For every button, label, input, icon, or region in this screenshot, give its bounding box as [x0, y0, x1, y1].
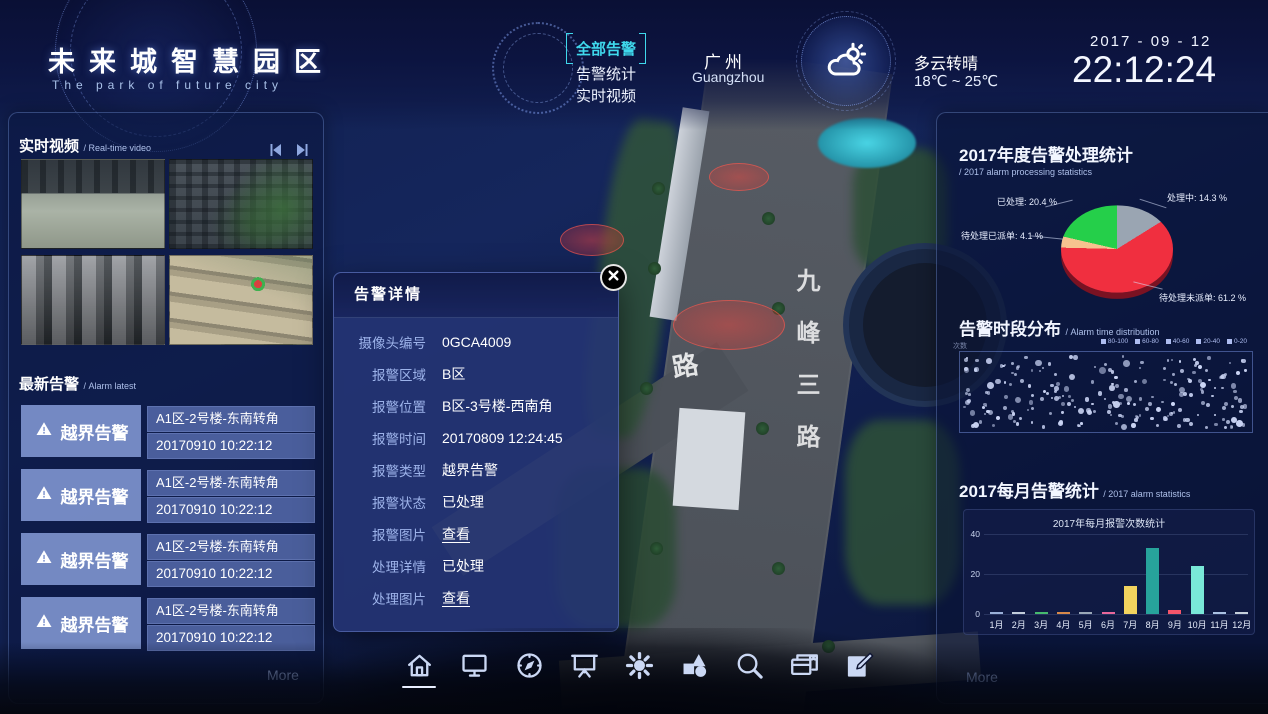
scatter-point: [968, 393, 971, 396]
scatter-point: [1071, 399, 1074, 402]
scatter-point: [1123, 360, 1130, 367]
weather-condition: 多云转晴: [914, 50, 978, 74]
scatter-point: [1233, 390, 1237, 394]
scatter-point: [1091, 403, 1093, 405]
scatter-point: [1111, 370, 1115, 374]
video-prev-button[interactable]: [265, 141, 287, 161]
alarm-timestamp: 20170910 10:22:12: [147, 497, 315, 523]
view-link[interactable]: 查看: [442, 524, 470, 544]
scatter-point: [1104, 363, 1108, 367]
scatter-legend: 80-10060-8040-6020-400-20: [937, 338, 1247, 345]
map-building: [673, 408, 746, 510]
popup-field-row: 报警位置B区-3号楼-西南角: [334, 395, 618, 417]
alarm-type-label: 越界告警: [61, 419, 129, 444]
right-panel: 2017年度告警处理统计 / 2017 alarm processing sta…: [936, 112, 1268, 704]
bar-month-label: 6月: [1097, 618, 1119, 631]
field-label: 报警时间: [334, 428, 426, 448]
view-link[interactable]: 查看: [442, 588, 470, 608]
popup-field-row: 报警图片查看: [334, 523, 618, 545]
scatter-point: [1148, 402, 1152, 406]
bar-month-label: 9月: [1164, 618, 1186, 631]
scatter-point: [1124, 388, 1128, 392]
scatter-point: [1179, 360, 1182, 363]
legend-label: 0-20: [1234, 338, 1247, 345]
scatter-point: [1054, 373, 1057, 376]
bar-section-header: 2017每月告警统计 / 2017 alarm statistics: [959, 477, 1190, 502]
scatter-point: [1073, 355, 1078, 360]
pie-callout-label: 处理中: 14.3 %: [1167, 191, 1227, 204]
scatter-point: [985, 405, 987, 407]
field-label: 报警状态: [334, 492, 426, 512]
warning-triangle-icon: [34, 420, 54, 443]
scatter-point: [1231, 383, 1237, 389]
scatter-point: [1013, 420, 1016, 423]
alarm-location: A1区-2号楼-东南转角: [147, 598, 315, 624]
scatter-point: [1035, 360, 1041, 366]
scatter-point: [1195, 361, 1199, 365]
cards-icon: [789, 650, 820, 686]
scatter-point: [1027, 409, 1029, 411]
scatter-point: [1177, 424, 1181, 428]
alarm-list-item[interactable]: 越界告警A1区-2号楼-东南转角20170910 10:22:12: [21, 405, 313, 457]
scatter-point: [1069, 374, 1075, 380]
alarm-zone-ellipse[interactable]: [673, 300, 785, 350]
map-tree: [652, 182, 665, 195]
alarm-zone-ellipse[interactable]: [709, 163, 769, 191]
scatter-point: [1156, 424, 1159, 427]
alarm-location: A1区-2号楼-东南转角: [147, 534, 315, 560]
scatter-point: [1115, 384, 1119, 388]
toolbar-projection-screen[interactable]: [567, 650, 601, 690]
scatter-point: [1015, 397, 1021, 403]
field-label: 报警图片: [334, 524, 426, 544]
scatter-point: [1127, 402, 1130, 405]
scatter-point: [963, 406, 966, 409]
scatter-point: [971, 424, 975, 428]
scatter-point: [996, 416, 1001, 421]
scatter-point: [1039, 370, 1041, 372]
toolbar-monitor[interactable]: [457, 650, 491, 690]
map-tree: [650, 542, 663, 555]
scatter-point: [1139, 367, 1141, 369]
video-section-subtitle: / Real-time video: [83, 143, 151, 153]
scatter-point: [1042, 367, 1044, 369]
scatter-point: [1167, 359, 1170, 362]
field-value: 已处理: [442, 492, 484, 512]
bar-section-subtitle: / 2017 alarm statistics: [1103, 489, 1190, 499]
video-section-header: 实时视频 / Real-time video: [19, 135, 151, 156]
pie-callout-label: 已处理: 20.4 %: [997, 195, 1057, 208]
scatter-point: [1206, 403, 1210, 407]
scatter-point: [1064, 386, 1069, 391]
legend-label: 40-60: [1173, 338, 1190, 345]
warning-triangle-icon: [34, 548, 54, 571]
header-clock: 22:12:24: [1072, 49, 1216, 91]
alarm-list-item[interactable]: 越界告警A1区-2号楼-东南转角20170910 10:22:12: [21, 469, 313, 521]
popup-field-row: 摄像头编号0GCA4009: [334, 331, 618, 353]
scatter-point: [1004, 364, 1006, 366]
field-value: B区-3号楼-西南角: [442, 396, 552, 416]
scatter-point: [1098, 391, 1102, 395]
field-label: 报警区域: [334, 364, 426, 384]
legend-label: 80-100: [1108, 338, 1128, 345]
weather-widget: [801, 16, 891, 106]
scatter-point: [995, 379, 1000, 384]
bar-section-title: 2017每月告警统计: [959, 482, 1099, 501]
scatter-point: [1142, 379, 1147, 384]
popup-field-list: 摄像头编号0GCA4009报警区域B区报警位置B区-3号楼-西南角报警时间201…: [334, 331, 618, 619]
scatter-point: [1151, 396, 1154, 399]
map-tree: [756, 422, 769, 435]
scatter-point: [1031, 394, 1034, 397]
field-value: 20170809 12:24:45: [442, 430, 563, 446]
scatter-point: [1229, 362, 1231, 364]
scatter-point: [1085, 397, 1089, 401]
scatter-point: [1133, 403, 1137, 407]
bar-column: [1102, 612, 1115, 614]
scatter-point: [1236, 420, 1243, 427]
scatter-point: [1024, 356, 1028, 360]
scatter-point: [1214, 414, 1216, 416]
scatter-legend-item: 40-60: [1166, 338, 1190, 345]
scatter-point: [1135, 415, 1138, 418]
scatter-point: [1093, 410, 1096, 413]
scatter-point: [1201, 401, 1205, 405]
scatter-point: [1058, 396, 1062, 400]
scatter-point: [1067, 402, 1071, 406]
popup-field-row: 报警区域B区: [334, 363, 618, 385]
left-panel: 实时视频 / Real-time video 最新告警 / Alarm late…: [8, 112, 324, 704]
bar-month-label: 2月: [1008, 618, 1030, 631]
scatter-point: [1241, 359, 1245, 363]
scatter-point: [1020, 379, 1024, 383]
scatter-point: [1131, 423, 1135, 427]
bar-column: [1235, 612, 1248, 614]
alarm-detail-popup: 告警详情 摄像头编号0GCA4009报警区域B区报警位置B区-3号楼-西南角报警…: [333, 272, 619, 632]
warning-triangle-icon: [34, 484, 54, 507]
projection-screen-icon: [569, 650, 600, 686]
legend-swatch: [1135, 339, 1140, 344]
scatter-point: [1107, 410, 1111, 414]
alarm-list-item[interactable]: 越界告警A1区-2号楼-东南转角20170910 10:22:12: [21, 533, 313, 585]
scatter-point: [1139, 414, 1142, 417]
alarm-zone-ellipse[interactable]: [560, 224, 624, 256]
toolbar-gear[interactable]: [622, 650, 656, 690]
scatter-point: [1028, 384, 1032, 388]
popup-field-row: 报警类型越界告警: [334, 459, 618, 481]
alarm-location: A1区-2号楼-东南转角: [147, 406, 315, 432]
bar-month-label: 3月: [1030, 618, 1052, 631]
alarm-section-header: 最新告警 / Alarm latest: [19, 373, 136, 394]
bar-month-label: 4月: [1052, 618, 1074, 631]
field-label: 摄像头编号: [334, 332, 426, 352]
scatter-point: [1119, 402, 1123, 406]
scatter-point: [1054, 386, 1058, 390]
bar-month-label: 8月: [1142, 618, 1164, 631]
bar-column: [990, 612, 1003, 614]
scatter-point: [1239, 410, 1242, 413]
alarm-timestamp: 20170910 10:22:12: [147, 561, 315, 587]
scatter-point: [1003, 406, 1007, 410]
scatter-point: [1031, 421, 1034, 424]
alarm-section-subtitle: / Alarm latest: [83, 381, 136, 391]
alarm-type-label: 越界告警: [61, 547, 129, 572]
popup-header: 告警详情: [334, 273, 618, 318]
city-name-en: Guangzhou: [692, 69, 764, 85]
active-tab-underline: [402, 686, 436, 688]
home-icon: [404, 650, 435, 686]
menu-item-all-alarms[interactable]: 全部告警: [576, 38, 636, 59]
scatter-point: [1180, 369, 1184, 373]
popup-field-row: 处理图片查看: [334, 587, 618, 609]
scatter-point: [1163, 379, 1166, 382]
scatter-point: [1008, 414, 1014, 420]
scatter-point: [1200, 382, 1206, 388]
scatter-point: [1178, 408, 1182, 412]
scatter-point: [1244, 369, 1246, 371]
scatter-point: [979, 420, 982, 423]
scatter-point: [1173, 411, 1175, 413]
bar-ytick-label: 40: [964, 529, 980, 539]
bar-ytick-label: 20: [964, 569, 980, 579]
scatter-point: [1238, 398, 1242, 402]
legend-swatch: [1196, 339, 1201, 344]
warning-triangle-icon: [34, 612, 54, 635]
alarm-time-scatter-chart: [959, 351, 1253, 433]
scatter-point: [1099, 367, 1106, 374]
toolbar-search[interactable]: [732, 650, 766, 690]
scatter-point: [1189, 422, 1193, 426]
field-label: 报警类型: [334, 460, 426, 480]
toolbar-shapes[interactable]: [677, 650, 711, 690]
scatter-point: [1121, 424, 1127, 430]
scatter-point: [1104, 398, 1107, 401]
video-section-title: 实时视频: [19, 138, 79, 155]
scatter-point: [1016, 422, 1020, 426]
map-tree: [648, 262, 661, 275]
map-tree: [640, 382, 653, 395]
video-thumbnail[interactable]: [169, 159, 313, 249]
scatter-point: [1211, 395, 1213, 397]
scatter-point: [970, 410, 975, 415]
scatter-point: [1226, 420, 1230, 424]
scatter-point: [1108, 404, 1112, 408]
scatter-point: [1183, 392, 1187, 396]
field-label: 处理详情: [334, 556, 426, 576]
pie-section-title: 2017年度告警处理统计: [959, 141, 1133, 166]
alarm-type-label: 越界告警: [61, 483, 129, 508]
scatter-point: [1134, 380, 1137, 383]
scatter-point: [1078, 408, 1085, 415]
compass-icon: [514, 650, 545, 686]
toolbar-compass[interactable]: [512, 650, 546, 690]
scatter-point: [1115, 376, 1118, 379]
scatter-point: [1219, 376, 1222, 379]
scatter-point: [1049, 412, 1053, 416]
bar-gridline: [984, 614, 1248, 615]
field-value: B区: [442, 364, 465, 384]
bar-column: [1146, 548, 1159, 614]
field-value: 已处理: [442, 556, 484, 576]
scatter-point: [1234, 396, 1238, 400]
scatter-point: [1004, 395, 1008, 399]
scatter-legend-item: 80-100: [1101, 338, 1128, 345]
scatter-point: [1019, 417, 1022, 420]
bar-chart-inner-title: 2017年每月报警次数统计: [964, 515, 1254, 530]
scatter-point: [1122, 355, 1124, 357]
scatter-point: [1056, 382, 1060, 386]
legend-swatch: [1166, 339, 1171, 344]
scatter-point: [1118, 394, 1124, 400]
bar-column: [1213, 612, 1226, 614]
scatter-point: [1078, 425, 1081, 428]
scatter-point: [1094, 366, 1097, 369]
scatter-point: [1115, 422, 1119, 426]
scatter-point: [1091, 380, 1094, 383]
scatter-section-title: 告警时段分布: [959, 320, 1061, 339]
scatter-point: [1121, 415, 1124, 418]
search-icon: [734, 650, 765, 686]
weather-temperature: 18℃ ~ 25℃: [914, 72, 998, 90]
scatter-point: [1222, 406, 1226, 410]
bar-column: [1124, 586, 1137, 614]
scatter-point: [1134, 418, 1138, 422]
scatter-point: [1164, 417, 1168, 421]
scatter-point: [1014, 373, 1017, 376]
scatter-legend-item: 60-80: [1135, 338, 1159, 345]
scatter-point: [974, 368, 978, 372]
scatter-point: [1161, 401, 1164, 404]
scatter-point: [1207, 356, 1211, 360]
scatter-point: [1009, 383, 1012, 386]
pie-graphic: [1061, 205, 1173, 292]
shapes-icon: [679, 650, 710, 686]
scatter-point: [1222, 418, 1225, 421]
popup-field-row: 处理详情已处理: [334, 555, 618, 577]
scatter-point: [986, 358, 992, 364]
popup-close-button[interactable]: [600, 264, 627, 291]
toolbar-home[interactable]: [402, 650, 436, 690]
cloud-sun-icon: [822, 37, 870, 90]
field-value: 越界告警: [442, 460, 498, 480]
app-title: 未来城智慧园区: [48, 40, 335, 79]
video-next-button[interactable]: [293, 141, 315, 161]
scatter-point: [1171, 402, 1175, 406]
gear-icon: [624, 650, 655, 686]
bar-column: [1079, 612, 1092, 614]
legend-swatch: [1227, 339, 1232, 344]
toolbar-edit[interactable]: [842, 650, 876, 690]
scatter-point: [1011, 362, 1014, 365]
toolbar-cards[interactable]: [787, 650, 821, 690]
scatter-point: [1061, 411, 1063, 413]
scatter-point: [984, 413, 987, 416]
scatter-point: [1197, 414, 1199, 416]
field-label: 报警位置: [334, 396, 426, 416]
legend-swatch: [1101, 339, 1106, 344]
scatter-point: [1221, 387, 1224, 390]
scatter-point: [1048, 362, 1051, 365]
field-label: 处理图片: [334, 588, 426, 608]
scatter-point: [1171, 359, 1174, 362]
bar-column: [1168, 610, 1181, 614]
video-thumbnail[interactable]: [21, 159, 165, 249]
popup-field-row: 报警时间20170809 12:24:45: [334, 427, 618, 449]
menu-item-realtime-video[interactable]: 实时视频: [576, 85, 636, 106]
bottom-toolbar: [402, 650, 876, 690]
field-value: 0GCA4009: [442, 334, 511, 350]
scatter-point: [1074, 406, 1077, 409]
scatter-point: [1109, 385, 1115, 391]
legend-label: 60-80: [1142, 338, 1159, 345]
scatter-section-subtitle: / Alarm time distribution: [1065, 327, 1159, 337]
monitor-icon: [459, 650, 490, 686]
alarm-type-box: 越界告警: [21, 405, 141, 457]
bar-ytick-label: 0: [964, 609, 980, 619]
scatter-point: [1031, 369, 1034, 372]
scatter-point: [1208, 379, 1210, 381]
bar-gridline: [984, 574, 1248, 575]
scatter-point: [1200, 388, 1203, 391]
road-name-label: 九峰三路: [788, 268, 823, 548]
bar-month-label: 11月: [1209, 618, 1231, 631]
bar-month-label: 7月: [1119, 618, 1141, 631]
scatter-legend-item: 0-20: [1227, 338, 1247, 345]
scatter-point: [1031, 407, 1034, 410]
bar-column: [1035, 612, 1048, 614]
scatter-point: [1140, 361, 1143, 364]
video-thumbnail[interactable]: [169, 255, 313, 345]
scatter-point: [1042, 425, 1046, 429]
scatter-point: [1192, 371, 1196, 375]
popup-title: 告警详情: [354, 273, 422, 317]
scatter-section-header: 告警时段分布 / Alarm time distribution: [959, 315, 1159, 340]
monthly-alarm-bar-chart: 2017年每月报警次数统计 020401月2月3月4月5月6月7月8月9月10月…: [963, 509, 1255, 635]
bar-column: [1012, 612, 1025, 614]
scatter-point: [1061, 402, 1065, 406]
scatter-point: [965, 400, 970, 405]
alarm-type-box: 越界告警: [21, 469, 141, 521]
scatter-point: [1068, 395, 1071, 398]
map-tree: [772, 562, 785, 575]
scatter-point: [1139, 397, 1143, 401]
pie-callout-line: [1140, 199, 1167, 209]
map-tree: [762, 212, 775, 225]
scatter-point: [1040, 397, 1044, 401]
bar-month-label: 1月: [986, 618, 1008, 631]
scatter-point: [1051, 397, 1053, 399]
scatter-point: [1110, 414, 1112, 416]
video-thumbnail[interactable]: [21, 255, 165, 345]
scatter-point: [1062, 395, 1064, 397]
scatter-point: [966, 388, 970, 392]
video-grid: [21, 159, 311, 345]
scatter-point: [975, 359, 978, 362]
edit-icon: [844, 650, 875, 686]
scatter-point: [1163, 367, 1166, 370]
bar-column: [1057, 612, 1070, 614]
app-subtitle: The park of future city: [52, 78, 283, 92]
header-date: 2017 - 09 - 12: [1090, 33, 1211, 50]
scatter-point: [1086, 408, 1091, 413]
scatter-point: [1236, 371, 1240, 375]
scatter-point: [1145, 407, 1149, 411]
scatter-point: [1170, 381, 1173, 384]
alarm-location: A1区-2号楼-东南转角: [147, 470, 315, 496]
scatter-point: [1016, 366, 1020, 370]
bar-month-label: 5月: [1075, 618, 1097, 631]
menu-item-alarm-stats[interactable]: 告警统计: [576, 63, 636, 84]
